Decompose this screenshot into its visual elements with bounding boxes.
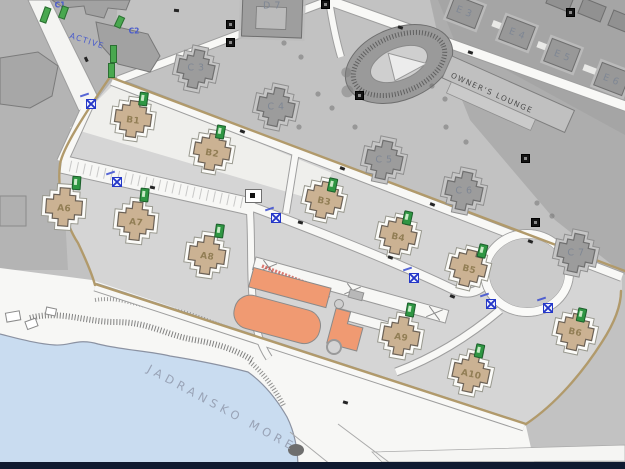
building-label-c5: C 5: [375, 155, 392, 166]
car-mark: [174, 9, 179, 12]
pool-circle: [335, 300, 344, 309]
blue-survey-marker: [486, 299, 496, 309]
black-utility-marker: [531, 218, 540, 227]
blue-survey-marker: [543, 303, 553, 313]
black-utility-marker: [355, 91, 364, 100]
building-label-d7: D 7: [263, 1, 281, 12]
info-kiosk: [245, 189, 262, 203]
green-strip: [108, 63, 115, 78]
blue-survey-marker: [86, 99, 96, 109]
building-label-c7: C 7: [567, 248, 584, 259]
black-utility-marker: [521, 154, 530, 163]
entrance-marker-b1: [138, 91, 149, 106]
zone-label-c2: C2: [129, 27, 140, 36]
villa-label-b1[interactable]: B1: [126, 115, 141, 127]
building-label-c3: C 3: [187, 63, 204, 74]
blue-survey-marker: [271, 213, 281, 223]
entrance-marker-a6: [72, 176, 82, 191]
villa-label-a7[interactable]: A7: [129, 217, 144, 228]
villa-label-b2[interactable]: B2: [204, 148, 219, 160]
resort-site-plan: A6 A7 A8 A9 A10 B1 B2 B3 B4 B5 B6 C 3 C …: [0, 0, 625, 469]
black-utility-marker: [321, 0, 330, 9]
black-utility-marker: [226, 20, 235, 29]
villa-label-a9[interactable]: A9: [393, 332, 408, 344]
entrance-marker-a8: [214, 223, 225, 238]
villa-label-a6[interactable]: A6: [57, 204, 71, 215]
black-utility-marker: [226, 38, 235, 47]
entrance-marker-a7: [139, 188, 149, 203]
bottom-strip: [0, 462, 625, 469]
blue-survey-marker: [409, 273, 419, 283]
black-utility-marker: [566, 8, 575, 17]
west-small-building: [0, 196, 26, 226]
turnaround-circle: [327, 340, 341, 354]
blue-survey-marker: [112, 177, 122, 187]
building-label-c4: C 4: [267, 102, 284, 113]
green-strip: [110, 45, 117, 63]
building-label-c6: C 6: [455, 186, 472, 197]
villa-label-a8[interactable]: A8: [199, 251, 214, 263]
base-map-layer: [0, 0, 625, 469]
